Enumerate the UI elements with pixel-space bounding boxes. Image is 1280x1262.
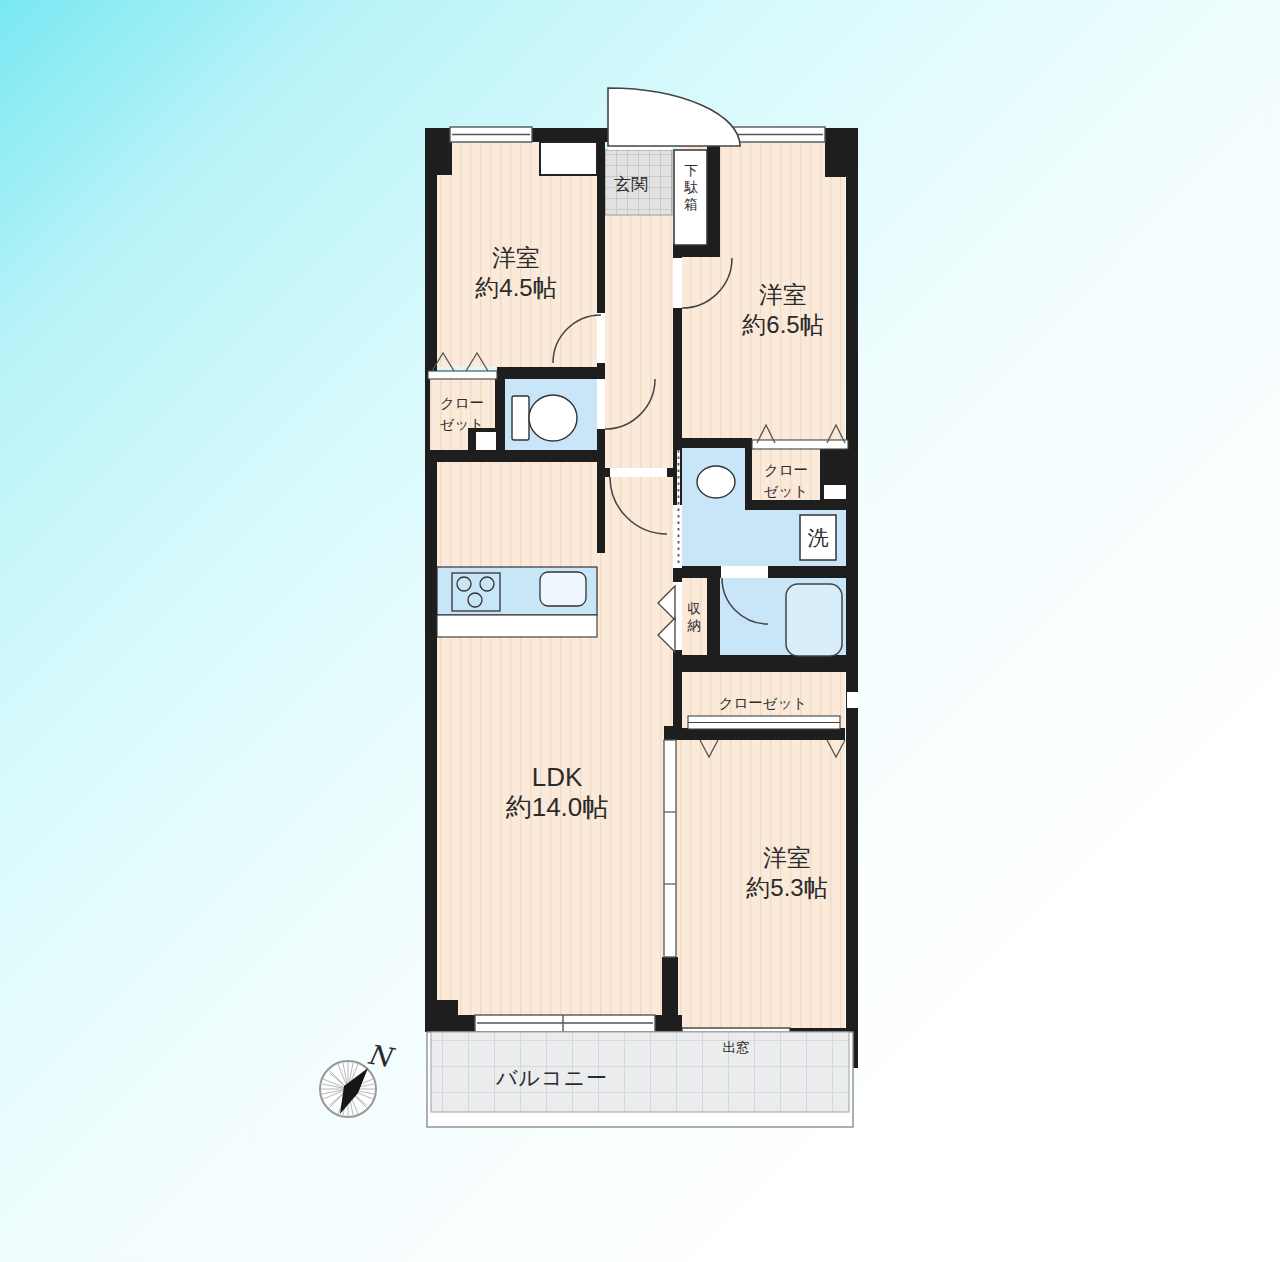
wall-left-closet <box>425 373 430 455</box>
wall-washroom-top <box>682 438 752 448</box>
entrance-door-arc-icon <box>608 88 740 146</box>
balcony-deck <box>431 1032 849 1112</box>
wall-closet2-bottom <box>745 500 848 510</box>
washbasin-icon <box>697 466 735 498</box>
sink-icon <box>540 572 586 606</box>
door-gap-ldk <box>610 468 667 477</box>
closet-west3-label: クローゼット <box>719 695 808 711</box>
closet-west2-label-2: ゼット <box>764 483 809 499</box>
door-gap-bath <box>721 566 768 578</box>
balcony-label: バルコニー <box>495 1066 608 1089</box>
kitchen-counter-front <box>437 615 597 637</box>
wall-corridor-right-a <box>673 250 682 258</box>
alcove-box <box>540 142 597 175</box>
wall-notch-3 <box>847 692 858 708</box>
wall-notch-1 <box>476 432 496 450</box>
wall-shoebox-right <box>707 140 720 250</box>
room-ldk-name-label: LDK <box>532 762 583 792</box>
floor-plan-page: N 洋室 約4.5帖 洋室 約6.5帖 LDK 約14.0帖 洋室 約5.3帖 … <box>0 0 1280 1262</box>
closet-west1-label-1: クロー <box>440 395 484 411</box>
room-west3-size-label: 約5.3帖 <box>745 874 827 901</box>
wall-partition-top <box>664 726 676 740</box>
floor-plan-canvas: N 洋室 約4.5帖 洋室 約6.5帖 LDK 約14.0帖 洋室 約5.3帖 … <box>0 0 1280 1262</box>
shoe-box-label-2: 駄 <box>684 180 698 195</box>
door-gap-west2 <box>673 258 682 308</box>
toilet-icon <box>512 395 577 441</box>
wall-left-lower <box>425 455 437 1015</box>
room-ldk-size-label: 約14.0帖 <box>506 792 609 822</box>
bathtub-icon <box>786 584 842 656</box>
washing-machine-label: 洗 <box>808 526 829 549</box>
wall-closet2-left <box>745 443 752 505</box>
wall-bath-left <box>707 566 720 667</box>
closet-west1-label-2: ゼット <box>440 416 485 432</box>
closet-west2-shelf <box>752 440 848 449</box>
wall-right <box>846 128 858 1068</box>
wall-notch-2 <box>824 485 846 499</box>
sliding-partition <box>664 740 676 957</box>
wall-bath-bottom <box>673 655 858 672</box>
wall-closet3-bottom <box>672 728 845 740</box>
closet-west1-shelf <box>428 371 497 379</box>
compass-icon: N <box>320 1038 398 1117</box>
entrance-label: 玄関 <box>614 175 648 194</box>
closet-west2-label-1: クロー <box>764 462 808 478</box>
wall-left-upper <box>425 128 437 373</box>
storage-label-2: 納 <box>687 618 701 633</box>
compass-north-label: N <box>365 1038 398 1073</box>
wall-toilet-bottom <box>425 450 605 462</box>
pillar-bottom-left <box>425 1000 458 1032</box>
room-ldk-floor <box>437 462 676 1015</box>
shoe-box-label-3: 箱 <box>684 197 698 212</box>
bay-window-label: 出窓 <box>723 1040 750 1055</box>
room-west3-name-label: 洋室 <box>763 844 811 871</box>
storage-label-1: 収 <box>687 601 701 616</box>
wall-toilet-top <box>497 367 605 379</box>
room-west2-size-label: 約6.5帖 <box>741 311 823 338</box>
shoe-box-label-1: 下 <box>684 163 698 178</box>
storage-floor <box>682 578 707 655</box>
closet-west3-track <box>688 716 840 729</box>
room-west1-name-label: 洋室 <box>492 244 540 271</box>
balcony <box>427 1032 853 1127</box>
door-gap-toilet <box>597 379 605 429</box>
door-gap-west1 <box>597 313 605 363</box>
room-west2-name-label: 洋室 <box>759 281 807 308</box>
room-west1-size-label: 約4.5帖 <box>474 274 556 301</box>
